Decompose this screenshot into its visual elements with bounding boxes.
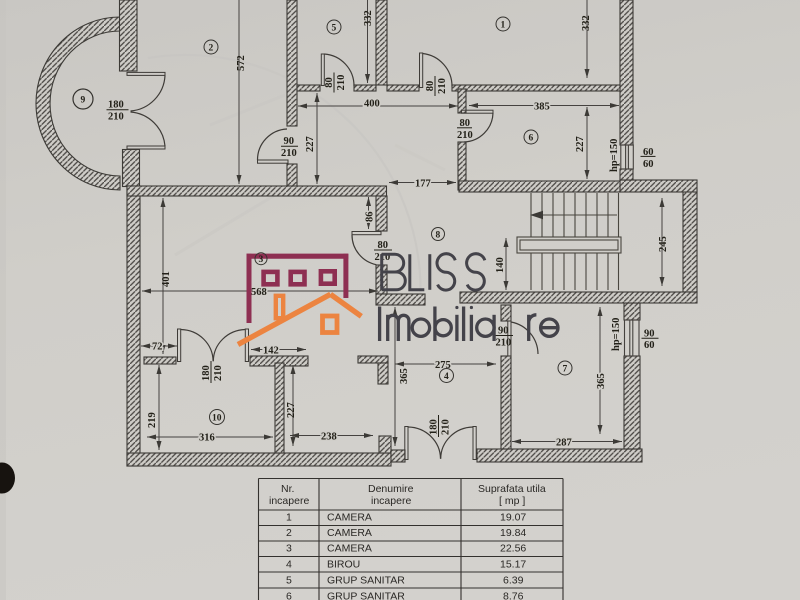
svg-text:2: 2 — [286, 527, 292, 539]
svg-text:CAMERA: CAMERA — [327, 543, 372, 555]
svg-text:238: 238 — [321, 432, 337, 443]
svg-text:GRUP SANITAR: GRUP SANITAR — [327, 591, 405, 600]
svg-text:332: 332 — [363, 10, 374, 26]
svg-text:10: 10 — [212, 414, 222, 424]
svg-text:142: 142 — [263, 346, 279, 357]
svg-text:365: 365 — [399, 368, 410, 384]
svg-text:210: 210 — [437, 78, 448, 94]
svg-text:572: 572 — [236, 55, 247, 71]
svg-text:5: 5 — [332, 24, 337, 34]
svg-text:CAMERA: CAMERA — [327, 527, 372, 539]
svg-text:316: 316 — [199, 433, 215, 444]
svg-text:[ mp ]: [ mp ] — [499, 495, 525, 507]
svg-text:210: 210 — [496, 338, 512, 349]
svg-text:hp=150: hp=150 — [611, 318, 622, 351]
svg-text:568: 568 — [251, 287, 267, 298]
svg-text:15.17: 15.17 — [500, 559, 526, 571]
svg-text:365: 365 — [596, 373, 607, 389]
svg-text:80: 80 — [378, 240, 389, 251]
svg-text:6.39: 6.39 — [503, 575, 524, 587]
svg-text:227: 227 — [286, 402, 297, 418]
svg-text:332: 332 — [581, 15, 592, 31]
svg-text:72: 72 — [152, 342, 163, 353]
svg-text:5: 5 — [286, 575, 292, 587]
svg-text:177: 177 — [415, 179, 431, 190]
svg-text:210: 210 — [441, 419, 452, 435]
svg-text:incapere: incapere — [269, 495, 309, 507]
svg-text:210: 210 — [457, 130, 473, 141]
svg-text:4: 4 — [286, 559, 292, 571]
svg-text:1: 1 — [286, 512, 292, 524]
svg-text:Nr.: Nr. — [281, 483, 294, 495]
svg-text:180: 180 — [429, 419, 440, 435]
svg-text:3: 3 — [286, 543, 292, 555]
svg-text:180: 180 — [201, 365, 212, 381]
svg-text:60: 60 — [644, 340, 655, 351]
svg-text:Suprafata utila: Suprafata utila — [478, 483, 546, 495]
svg-text:6: 6 — [286, 591, 292, 600]
svg-text:210: 210 — [336, 75, 347, 91]
svg-text:8.76: 8.76 — [503, 591, 524, 600]
svg-text:19.84: 19.84 — [500, 527, 526, 539]
svg-text:7: 7 — [563, 365, 568, 375]
svg-text:2: 2 — [209, 44, 214, 54]
svg-text:Denumire: Denumire — [368, 483, 414, 495]
svg-text:19.07: 19.07 — [500, 512, 526, 524]
svg-text:210: 210 — [281, 148, 297, 159]
svg-text:90: 90 — [284, 136, 295, 147]
svg-text:CAMERA: CAMERA — [327, 512, 372, 524]
svg-text:245: 245 — [658, 236, 669, 252]
svg-text:227: 227 — [575, 136, 586, 152]
svg-text:86: 86 — [365, 212, 376, 223]
svg-text:1: 1 — [501, 21, 506, 31]
svg-text:60: 60 — [643, 159, 654, 170]
svg-text:180: 180 — [108, 100, 124, 111]
svg-text:incapere: incapere — [371, 495, 411, 507]
svg-text:287: 287 — [556, 438, 572, 449]
svg-text:227: 227 — [305, 136, 316, 152]
svg-text:4: 4 — [444, 372, 449, 382]
svg-text:400: 400 — [364, 99, 380, 110]
svg-text:385: 385 — [534, 102, 550, 113]
svg-text:hp=150: hp=150 — [609, 139, 620, 172]
svg-text:140: 140 — [495, 257, 506, 273]
svg-text:GRUP SANITAR: GRUP SANITAR — [327, 575, 405, 587]
svg-text:3: 3 — [259, 255, 264, 265]
svg-text:90: 90 — [498, 326, 509, 337]
svg-text:9: 9 — [81, 96, 86, 106]
svg-text:80: 80 — [425, 81, 436, 92]
svg-text:6: 6 — [529, 134, 534, 144]
svg-text:401: 401 — [161, 271, 172, 287]
svg-text:219: 219 — [147, 412, 158, 428]
svg-text:8: 8 — [436, 231, 441, 241]
svg-text:80: 80 — [324, 77, 335, 88]
svg-text:BIROU: BIROU — [327, 559, 360, 571]
svg-text:210: 210 — [213, 365, 224, 381]
svg-text:22.56: 22.56 — [500, 543, 526, 555]
svg-text:210: 210 — [108, 112, 124, 123]
